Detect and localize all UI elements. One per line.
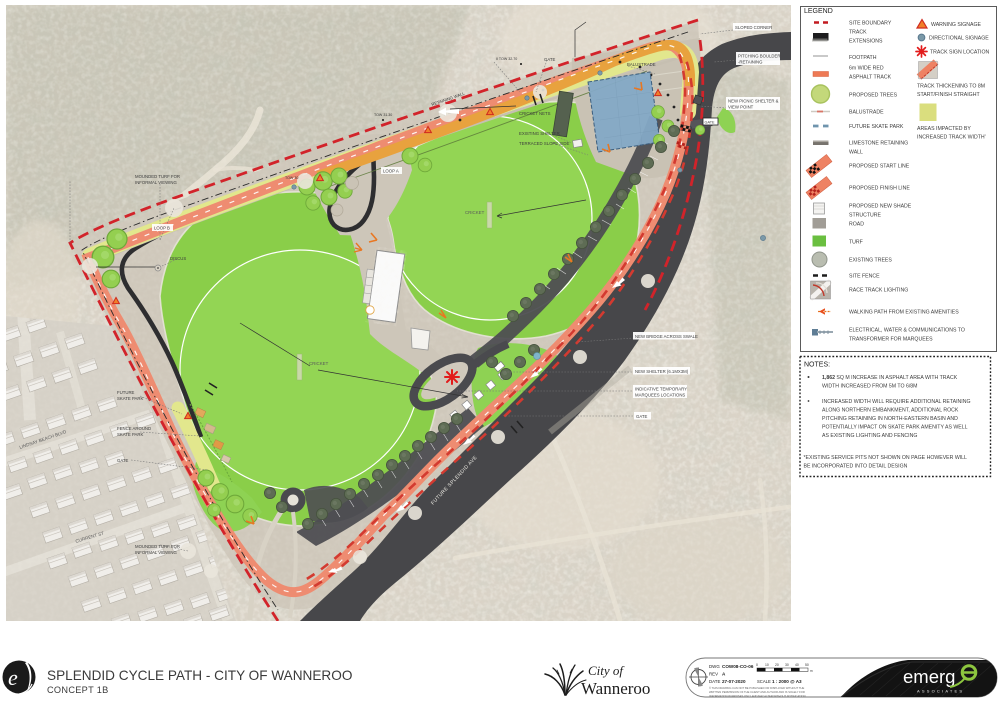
svg-text:WIDTH INCREASED FROM 5M TO 6/8: WIDTH INCREASED FROM 5M TO 6/8M (822, 384, 918, 390)
svg-text:CRICKET: CRICKET (465, 210, 485, 215)
svg-text:WARNING SIGNAGE: WARNING SIGNAGE (931, 22, 981, 28)
svg-text:INFORMAL VIEWING: INFORMAL VIEWING (135, 550, 178, 555)
svg-text:LOOP A: LOOP A (383, 169, 399, 174)
svg-text:GATE: GATE (544, 57, 556, 62)
svg-text:DISCUS: DISCUS (170, 256, 186, 261)
svg-text:SKATE PARK: SKATE PARK (117, 396, 143, 401)
svg-text:BALUSTRADE: BALUSTRADE (627, 62, 656, 67)
svg-text:PROPOSED NEW SHADE: PROPOSED NEW SHADE (849, 204, 912, 210)
svg-text:INCREASED TRACK WIDTH': INCREASED TRACK WIDTH' (917, 135, 986, 141)
svg-text:MARQUEES LOCATIONS: MARQUEES LOCATIONS (635, 393, 685, 398)
svg-text:EXISTING SHELTER: EXISTING SHELTER (519, 131, 560, 136)
svg-text:INFORMAL VIEWING: INFORMAL VIEWING (135, 180, 178, 185)
svg-text:ELECTRICAL, WATER & COMMUNICAT: ELECTRICAL, WATER & COMMUNICATIONS TO (849, 328, 965, 334)
svg-text:WALKING PATH FROM EXISTING AME: WALKING PATH FROM EXISTING AMENITIES (849, 310, 959, 316)
svg-text:DATE: DATE (709, 679, 720, 684)
svg-text:LOOP B: LOOP B (154, 226, 170, 231)
svg-text:TRACK SIGN LOCATION: TRACK SIGN LOCATION (930, 50, 990, 56)
svg-text:STRUCTURE: STRUCTURE (849, 213, 882, 219)
svg-text:ALONG NORTHERN EMBANKMENT, ADD: ALONG NORTHERN EMBANKMENT, ADDITIONAL RO… (822, 408, 959, 414)
svg-text:City of: City of (588, 663, 625, 678)
svg-text:POTENTIALLY IMPACT ON SKATE PA: POTENTIALLY IMPACT ON SKATE PARK AMENITY… (822, 425, 968, 431)
svg-text:AREAS IMPACTED BY: AREAS IMPACTED BY (917, 126, 971, 132)
svg-text:SITE BOUNDARY: SITE BOUNDARY (849, 21, 892, 27)
svg-text:20: 20 (775, 663, 779, 667)
svg-text:BALUSTRADE: BALUSTRADE (849, 110, 884, 116)
svg-text:10: 10 (765, 663, 769, 667)
svg-text:PROPOSED START LINE: PROPOSED START LINE (849, 164, 910, 170)
svg-text:TURF: TURF (849, 240, 863, 246)
svg-text:NEW SHELTER (6.1MX3M): NEW SHELTER (6.1MX3M) (635, 369, 689, 374)
svg-text:ROAD: ROAD (849, 222, 864, 228)
svg-text:TRACK THICKENING TO 8M: TRACK THICKENING TO 8M (917, 84, 985, 90)
svg-text:1,862 SQ M INCREASE IN ASPHALT: 1,862 SQ M INCREASE IN ASPHALT AREA WITH… (822, 375, 958, 381)
svg-text:TERRACED SLOPE SIDE: TERRACED SLOPE SIDE (519, 141, 570, 146)
svg-text:MOUNDED TURF FOR: MOUNDED TURF FOR (135, 174, 180, 179)
svg-text:NEW BRIDGE ACROSS SWALE: NEW BRIDGE ACROSS SWALE (635, 334, 698, 339)
svg-text:0: 0 (756, 663, 758, 667)
svg-text:PITCHING BOULDER: PITCHING BOULDER (738, 54, 781, 59)
svg-text:CRICKET NETS: CRICKET NETS (519, 111, 551, 116)
svg-text:TOW 30: TOW 30 (285, 176, 298, 180)
svg-text:GATE: GATE (117, 458, 129, 463)
svg-text:VIEW POINT: VIEW POINT (728, 105, 754, 110)
svg-text:INDICATIVE TEMPORARY: INDICATIVE TEMPORARY (635, 387, 687, 392)
svg-text:SKATE PARK: SKATE PARK (117, 432, 143, 437)
svg-text:WRITTEN PERMISSION OF THE CLIE: WRITTEN PERMISSION OF THE CLIENT AND AUT… (709, 690, 805, 694)
svg-text:LEGEND: LEGEND (804, 8, 833, 15)
svg-text:FUTURE: FUTURE (117, 390, 135, 395)
svg-text:RACE TRACK LIGHTING: RACE TRACK LIGHTING (849, 288, 908, 294)
svg-text:II TOW 32.70: II TOW 32.70 (496, 57, 517, 61)
svg-text:50: 50 (805, 663, 809, 667)
svg-text:ASPHALT TRACK: ASPHALT TRACK (849, 75, 892, 81)
svg-text:EXTENSIONS: EXTENSIONS (849, 39, 883, 45)
svg-text:CRICKET: CRICKET (309, 361, 329, 366)
svg-text:NEW PICNIC SHELTER &: NEW PICNIC SHELTER & (728, 99, 779, 104)
svg-text:DIRECTIONAL SIGNAGE: DIRECTIONAL SIGNAGE (929, 36, 989, 42)
svg-text:AS EXISTING LIGHTING AND FENCI: AS EXISTING LIGHTING AND FENCING (822, 433, 917, 439)
svg-text:PROPOSED TREES: PROPOSED TREES (849, 93, 898, 99)
svg-text:TRANSFORMER FOR MARQUEES: TRANSFORMER FOR MARQUEES (849, 337, 933, 343)
svg-text:40: 40 (795, 663, 799, 667)
svg-text:TRACK: TRACK (849, 30, 867, 36)
svg-text:FOOTPATH: FOOTPATH (849, 55, 877, 61)
svg-text:TOW 31.30: TOW 31.30 (374, 113, 392, 117)
svg-text:PROPOSED FINISH LINE: PROPOSED FINISH LINE (849, 186, 910, 192)
svg-text:EXISTING TREES: EXISTING TREES (849, 258, 892, 264)
svg-text:SITE FENCE: SITE FENCE (849, 274, 880, 280)
svg-text:SCALE: SCALE (757, 679, 771, 684)
svg-text:SLOPED CORNER: SLOPED CORNER (735, 25, 772, 30)
svg-text:FENCE AROUND: FENCE AROUND (117, 426, 151, 431)
svg-text:PITCHING RETAINING IN NORTH-EA: PITCHING RETAINING IN NORTH-EASTERN BASI… (822, 416, 958, 422)
svg-text:SPLENDID CYCLE PATH - CITY OF: SPLENDID CYCLE PATH - CITY OF WANNEROO (47, 668, 352, 683)
svg-text:GATE: GATE (705, 121, 716, 125)
svg-text:emerg: emerg (903, 666, 955, 687)
svg-text:INCREASED WIDTH WILL REQUIRE A: INCREASED WIDTH WILL REQUIRE ADDITIONAL … (822, 399, 971, 405)
svg-text:CONCEPT 1B: CONCEPT 1B (47, 685, 109, 695)
svg-text:27-07-2020: 27-07-2020 (722, 679, 746, 684)
svg-text:m: m (810, 669, 813, 673)
svg-text:1 : 2000 @ A3: 1 : 2000 @ A3 (772, 679, 802, 684)
svg-text:FUTURE SKATE PARK: FUTURE SKATE PARK (849, 124, 904, 130)
svg-text:*EXISTING SERVICE PITS NOT SHO: *EXISTING SERVICE PITS NOT SHOWN ON PAGE… (804, 455, 968, 461)
svg-text:ASSOCIATES: ASSOCIATES (917, 689, 964, 694)
svg-text:e: e (8, 665, 18, 690)
svg-text:COW08-CO-06: COW08-CO-06 (722, 664, 754, 669)
svg-text:NOTES:: NOTES: (804, 362, 830, 369)
svg-text:INFORMATION PURPOSES ONLY AND: INFORMATION PURPOSES ONLY AND MAY ALTER … (709, 694, 807, 698)
svg-text:6m WIDE RED: 6m WIDE RED (849, 66, 884, 72)
svg-text:Wanneroo: Wanneroo (581, 679, 650, 698)
svg-text:DWG: DWG (709, 664, 720, 669)
svg-text:WALL: WALL (849, 150, 863, 156)
svg-text:-RETAINING: -RETAINING (738, 60, 763, 65)
svg-text:LIMESTONE RETAINING: LIMESTONE RETAINING (849, 141, 908, 147)
svg-text:START/FINISH STRAIGHT: START/FINISH STRAIGHT (917, 92, 980, 98)
svg-text:BE INCORPORATED INTO DETAIL DE: BE INCORPORATED INTO DETAIL DESIGN (804, 464, 908, 470)
svg-text:© THIS DRAWING CAN NOT BE PUBL: © THIS DRAWING CAN NOT BE PUBLISHED OR D… (709, 686, 804, 690)
svg-text:REV: REV (709, 672, 718, 677)
svg-text:30: 30 (785, 663, 789, 667)
svg-text:GATE: GATE (636, 414, 648, 419)
svg-text:MOUNDED TURF FOR: MOUNDED TURF FOR (135, 544, 180, 549)
